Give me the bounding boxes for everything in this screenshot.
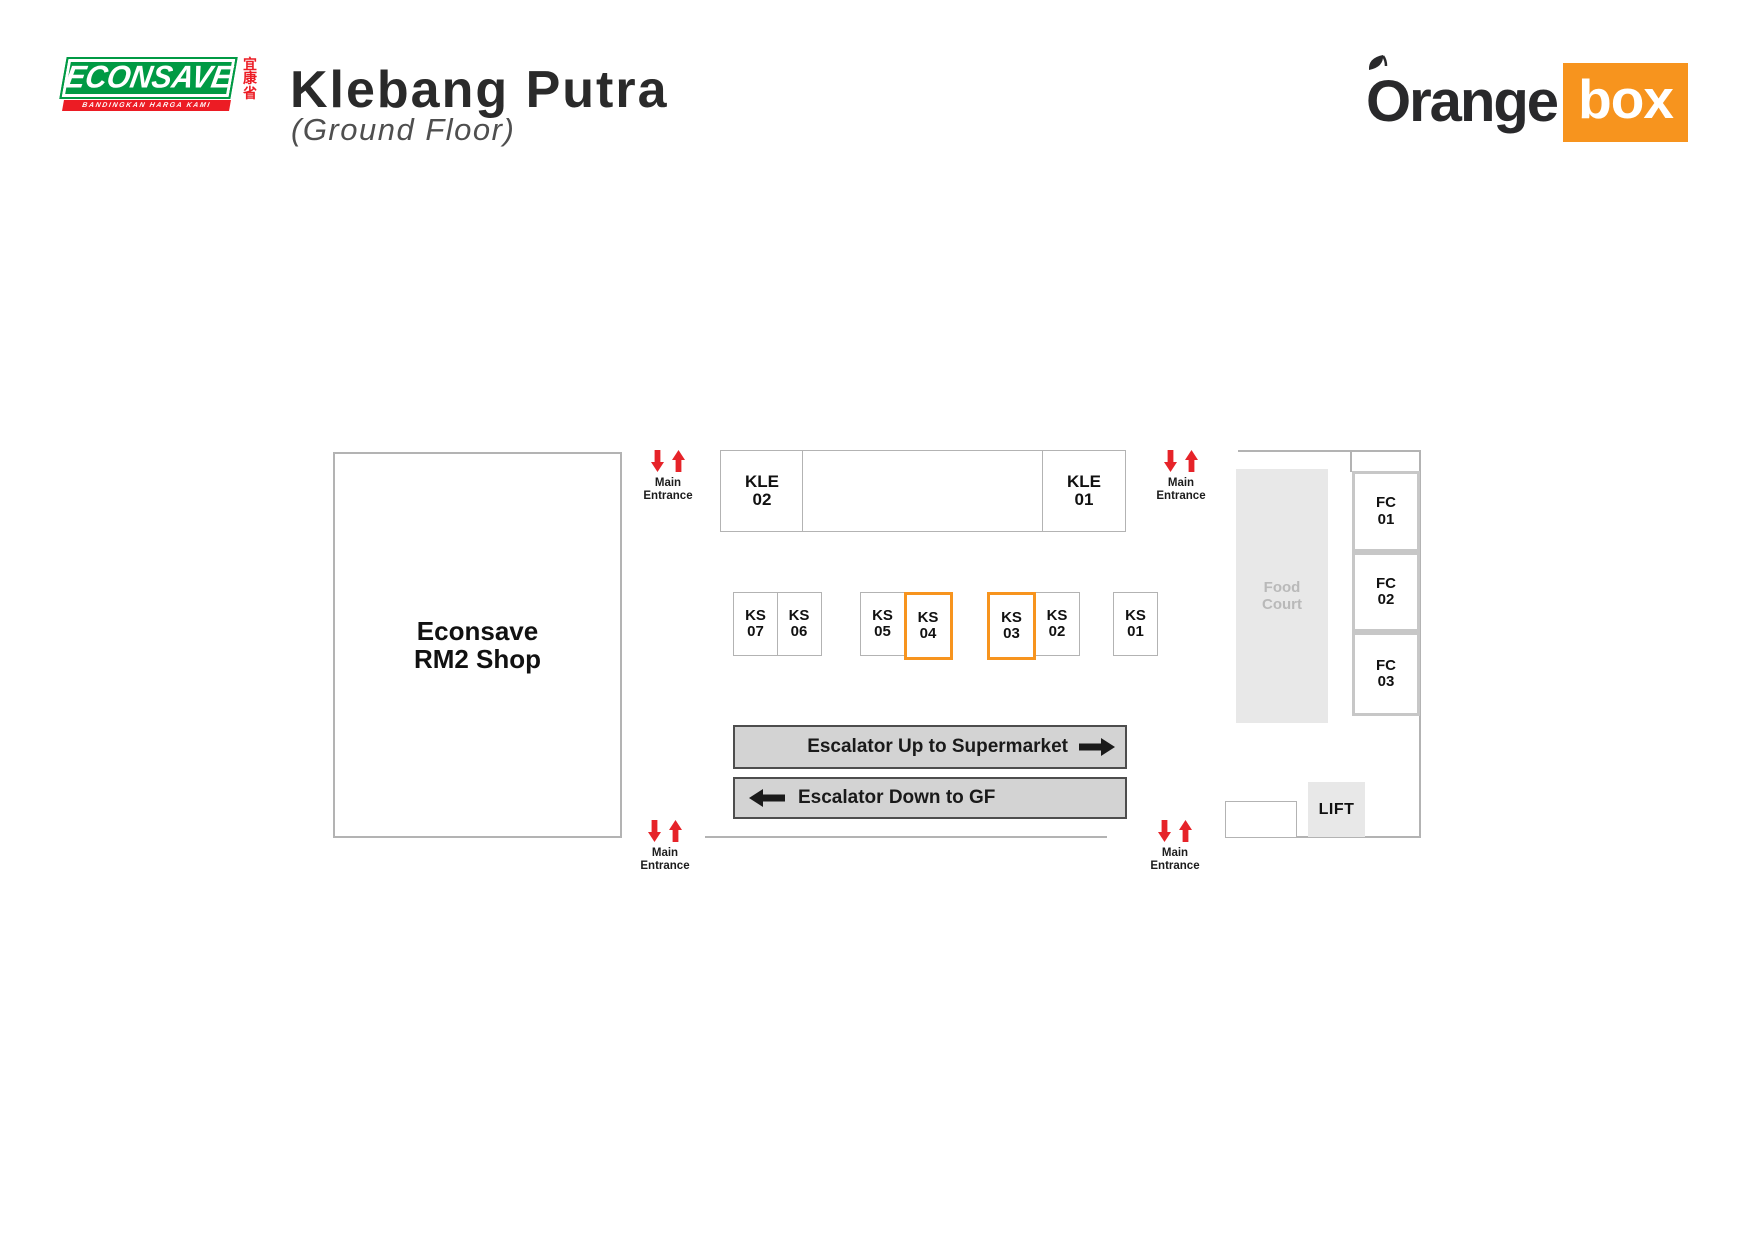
unit-number: 07: [747, 624, 764, 641]
econsave-wordmark-box: ECONSAVE: [59, 57, 237, 99]
unit-code: FC: [1376, 576, 1396, 592]
entrance-down-arrow-icon: [1158, 820, 1171, 842]
kiosk-pair-ks07-ks06: KS 07 KS 06: [733, 592, 822, 656]
entrance-arrows: [648, 820, 682, 843]
arrow-left-icon: [749, 789, 785, 807]
wall-stub-fc-corridor: [1350, 452, 1352, 472]
unit-code: KS: [1125, 608, 1146, 625]
unit-code: KS: [1001, 610, 1022, 627]
entrance-up-arrow-icon: [672, 450, 685, 472]
entrance-up-arrow-icon: [669, 820, 682, 842]
entrance-down-arrow-icon: [651, 450, 664, 472]
econsave-tagline-strip: BANDINGKAN HARGA KAMI: [62, 100, 231, 111]
main-entrance-bottom-left: Main Entrance: [625, 820, 705, 872]
unit-code: KLE: [745, 473, 779, 491]
entrance-down-arrow-icon: [1164, 450, 1177, 472]
entrance-label-line2: Entrance: [1150, 860, 1199, 873]
food-court-area: Food Court: [1236, 469, 1328, 723]
econsave-chinese-text: 宜康省: [242, 57, 258, 111]
entrance-arrows: [1164, 450, 1198, 473]
entrance-label-line2: Entrance: [640, 860, 689, 873]
unit-number: 03: [1378, 674, 1395, 690]
econsave-tagline: BANDINGKAN HARGA KAMI: [82, 102, 212, 109]
unit-code: KS: [872, 608, 893, 625]
escalator-up-banner: Escalator Up to Supermarket: [733, 725, 1127, 769]
orangebox-logo: Orange box: [1366, 62, 1688, 142]
unit-number: 01: [1075, 491, 1094, 509]
main-entrance-top-left: Main Entrance: [628, 450, 708, 502]
unit-code: KS: [745, 608, 766, 625]
unit-fc-01: FC 01: [1352, 471, 1420, 552]
shop-label-line1: Econsave: [417, 617, 538, 645]
lift-label: LIFT: [1319, 801, 1355, 819]
unit-code: FC: [1376, 658, 1396, 674]
main-entrance-bottom-right: Main Entrance: [1135, 820, 1215, 872]
unit-ks-04-highlighted: KS 04: [904, 592, 953, 660]
leaf-icon: [1363, 50, 1393, 76]
entrance-label-line2: Entrance: [1156, 490, 1205, 503]
unit-code: KS: [789, 608, 810, 625]
entrance-label-line1: Main: [1168, 477, 1194, 490]
econsave-wordmark: ECONSAVE: [62, 60, 234, 96]
unit-ks-02: KS 02: [1035, 592, 1080, 656]
escalator-down-banner: Escalator Down to GF: [733, 777, 1127, 819]
unit-number: 02: [1378, 592, 1395, 608]
floor-plan-page: ECONSAVE BANDINGKAN HARGA KAMI 宜康省 Kleba…: [0, 0, 1754, 1241]
entrance-label-line1: Main: [1162, 847, 1188, 860]
unit-code: FC: [1376, 495, 1396, 511]
unit-number: 02: [1049, 624, 1066, 641]
kiosk-pair-ks05-ks04: KS 05 KS 04: [860, 592, 953, 660]
food-court-label-line1: Food: [1264, 579, 1301, 596]
econsave-logo-main: ECONSAVE BANDINGKAN HARGA KAMI: [63, 57, 234, 111]
food-court-label-line2: Court: [1262, 596, 1302, 613]
unit-fc-02: FC 02: [1352, 552, 1420, 632]
unit-number: 01: [1127, 624, 1144, 641]
escalator-up-label: Escalator Up to Supermarket: [807, 736, 1068, 758]
unit-ks-05: KS 05: [860, 592, 905, 656]
escalator-down-label: Escalator Down to GF: [798, 787, 995, 809]
entrance-label-line1: Main: [652, 847, 678, 860]
main-entrance-top-right: Main Entrance: [1141, 450, 1221, 502]
page-subtitle: (Ground Floor): [291, 112, 515, 148]
unit-number: 01: [1378, 512, 1395, 528]
shop-label-line2: RM2 Shop: [414, 645, 541, 673]
unit-kle-01: KLE 01: [1042, 450, 1126, 532]
orangebox-word-box-tile: box: [1563, 63, 1688, 142]
entrance-label-line2: Entrance: [643, 490, 692, 503]
econsave-logo: ECONSAVE BANDINGKAN HARGA KAMI 宜康省: [63, 57, 258, 111]
unit-unlabeled-top: [802, 450, 1044, 532]
entrance-label-line1: Main: [655, 477, 681, 490]
kiosk-pair-ks03-ks02: KS 03 KS 02: [987, 592, 1080, 660]
wall-bottom-left: [705, 836, 1107, 838]
entrance-arrows: [1158, 820, 1192, 843]
unit-code: KS: [918, 610, 939, 627]
unit-fc-03: FC 03: [1352, 632, 1420, 716]
orangebox-word-box: box: [1578, 72, 1673, 127]
unit-unlabeled-bottom: [1225, 801, 1297, 838]
lift-area: LIFT: [1308, 782, 1365, 837]
unit-code: KLE: [1067, 473, 1101, 491]
unit-ks-01: KS 01: [1113, 592, 1158, 656]
entrance-down-arrow-icon: [648, 820, 661, 842]
entrance-up-arrow-icon: [1185, 450, 1198, 472]
entrance-up-arrow-icon: [1179, 820, 1192, 842]
page-title: Klebang Putra: [290, 60, 669, 120]
unit-number: 05: [874, 624, 891, 641]
unit-ks-03-highlighted: KS 03: [987, 592, 1036, 660]
arrow-right-icon: [1079, 738, 1115, 756]
entrance-arrows: [651, 450, 685, 473]
unit-ks-06: KS 06: [777, 592, 822, 656]
unit-kle-02: KLE 02: [720, 450, 804, 532]
unit-number: 04: [920, 626, 937, 643]
unit-number: 02: [753, 491, 772, 509]
unit-number: 06: [791, 624, 808, 641]
orangebox-word-orange: Orange: [1366, 62, 1557, 142]
unit-ks-07: KS 07: [733, 592, 778, 656]
unit-econsave-rm2-shop: Econsave RM2 Shop: [333, 452, 622, 838]
unit-number: 03: [1003, 626, 1020, 643]
kiosk-ks01: KS 01: [1113, 592, 1158, 656]
unit-code: KS: [1047, 608, 1068, 625]
